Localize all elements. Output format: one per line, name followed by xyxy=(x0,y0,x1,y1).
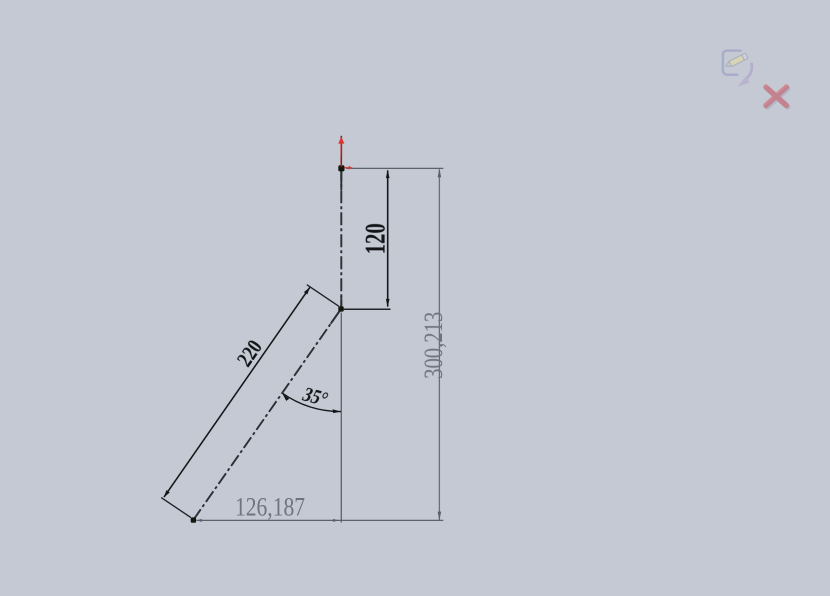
svg-text:126,187: 126,187 xyxy=(235,494,305,522)
svg-text:120: 120 xyxy=(361,223,392,254)
svg-text:300,213: 300,213 xyxy=(419,312,448,379)
